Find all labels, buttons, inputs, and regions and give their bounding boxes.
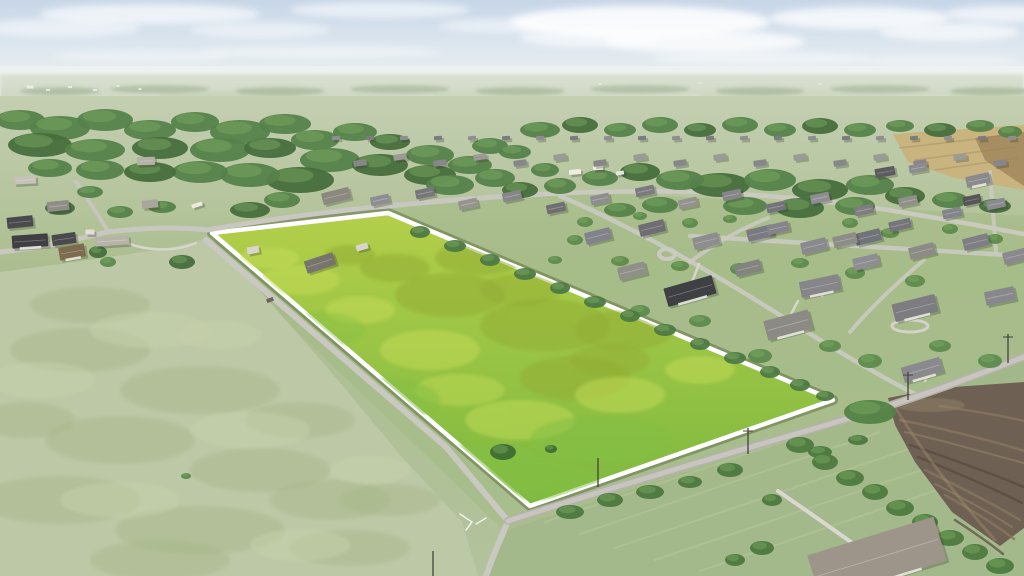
aerial-photo: [0, 0, 1024, 576]
aerial-photo-canvas: [0, 0, 1024, 576]
house: [137, 157, 157, 168]
house: [14, 175, 39, 187]
house: [47, 200, 72, 215]
house: [12, 233, 51, 251]
